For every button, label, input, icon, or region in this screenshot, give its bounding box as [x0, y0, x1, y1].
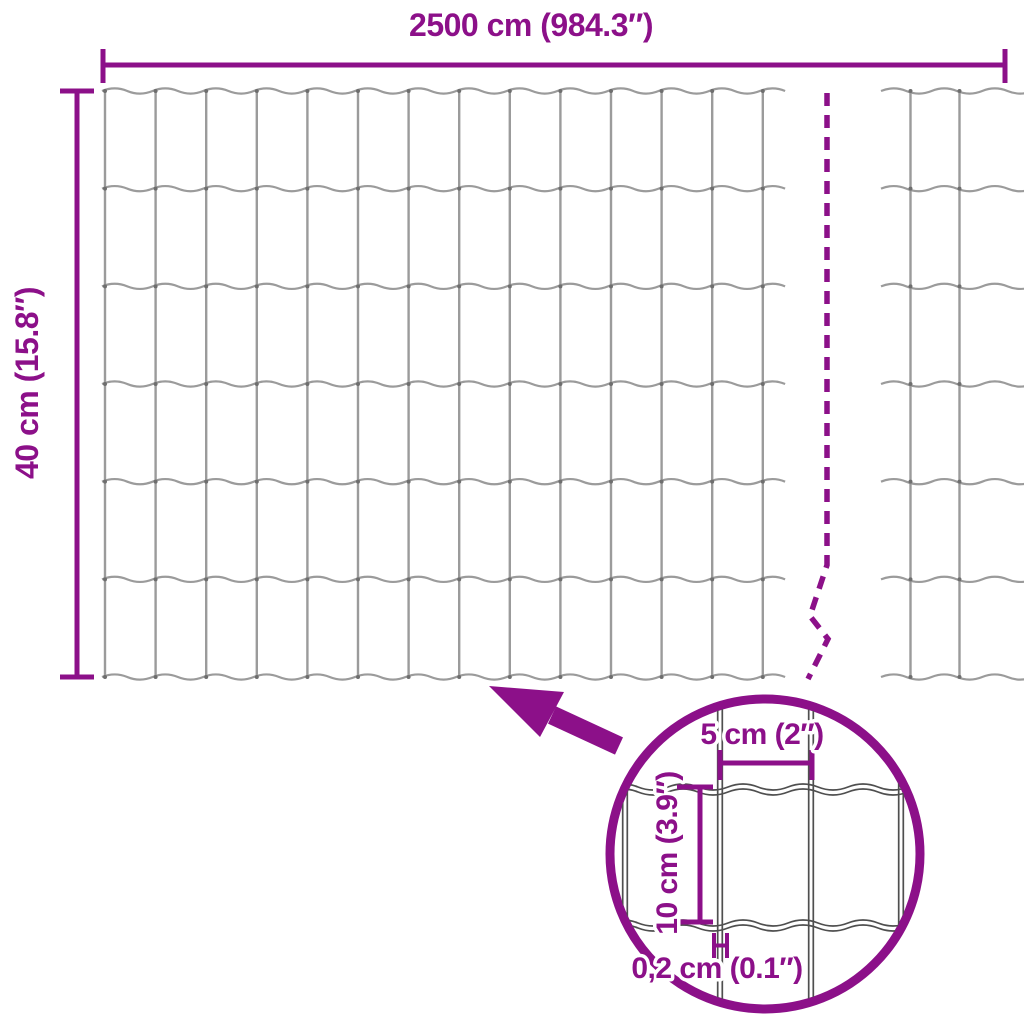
- height-dimension: 40 cm (15.8″): [9, 91, 94, 677]
- break-line: [808, 93, 828, 679]
- detail-arrow-shaft: [552, 715, 619, 746]
- height-dimension-label: 40 cm (15.8″): [9, 287, 45, 479]
- detail-arrow-icon: [489, 686, 619, 746]
- diagram-canvas: 2500 cm (984.3″) 40 cm (15.8″) 5 cm (2″)…: [0, 0, 1024, 1024]
- width-dimension: 2500 cm (984.3″): [103, 7, 1005, 83]
- mesh-height-label: 10 cm (3.9″): [651, 771, 684, 934]
- fence-mesh-right-segment: [881, 88, 1024, 679]
- detail-arrow-head: [489, 686, 564, 737]
- fence-dimension-diagram: 2500 cm (984.3″) 40 cm (15.8″) 5 cm (2″)…: [0, 0, 1024, 1024]
- wire-thickness-label: 0,2 cm (0.1″): [631, 952, 802, 985]
- mesh-width-label: 5 cm (2″): [700, 718, 823, 751]
- detail-view: 5 cm (2″) 10 cm (3.9″) 0,2 cm (0.1″): [608, 696, 938, 1012]
- fence-mesh-left: [102, 88, 785, 679]
- width-dimension-label: 2500 cm (984.3″): [409, 7, 653, 43]
